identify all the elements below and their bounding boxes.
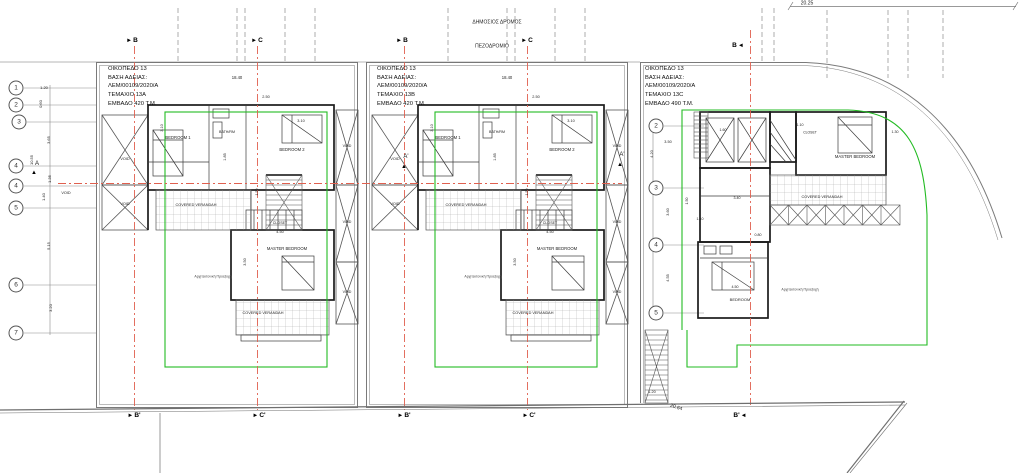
dim-label: 3.10	[161, 124, 165, 131]
section-marker: ►B'	[397, 413, 410, 420]
section-marker: ►C	[521, 38, 533, 45]
plot-info-line: ΤΕΜΑΧΙΟ 13Α	[108, 91, 158, 100]
dim-label: 3.50	[664, 141, 671, 145]
void-label: VOID	[343, 291, 352, 295]
section-arrow-icon: ►	[521, 38, 527, 44]
section-marker: ►C	[251, 38, 263, 45]
plot-info-line: ΕΜΒΑΔΟ 420 Τ.Μ.	[377, 100, 427, 109]
dim-label: 4.20	[651, 150, 655, 157]
section-arrow-icon: ►	[397, 413, 403, 419]
grid-bubble: 2	[9, 98, 24, 113]
plot-info-line: ΕΜΒΑΔΟ 420 Τ.Μ.	[108, 100, 158, 109]
room-label: CLOSET	[273, 222, 287, 226]
dim-label: 1.20	[40, 86, 48, 90]
grid-lines	[24, 85, 96, 335]
dim-label: 1.50	[526, 189, 530, 196]
grid-bubble: 4	[9, 179, 24, 194]
plot-info-block: ΟΙΚΟΠΕΔΟ 13ΒΑΣΗ ΑΔΕΙΑΣ:ΛΕΜ/00109/2020/ΑΤ…	[108, 65, 158, 108]
street-label: ΔΗΜΟΣΙΟΣ ΔΡΟΜΟΣ	[472, 21, 521, 26]
triangle-marker-icon: ▲	[401, 164, 407, 170]
grid-bubble: 4	[649, 238, 664, 253]
section-marker-label: B	[133, 38, 138, 45]
room-label: BEDROOM 2	[279, 148, 304, 152]
overhang-label: Αρχιτεκτονική Προεξοχή	[464, 275, 501, 279]
section-marker-label: B'	[404, 413, 410, 420]
dim-label: 1.50	[256, 189, 260, 196]
void-label: VOID	[390, 203, 399, 207]
section-marker-label: B'	[733, 413, 739, 420]
plot-info-line: ΛΕΜ/00109/2020/Α	[645, 82, 695, 91]
room-label: COVERED VERANDAH	[243, 312, 284, 316]
dim-label: 1.50	[686, 198, 690, 205]
section-marker-label: C	[528, 38, 533, 45]
grid-bubble: 6	[9, 278, 24, 293]
dim-label: 3.50	[514, 258, 518, 265]
dim-label: 1.20	[648, 391, 655, 395]
room-label: BATH/RM	[489, 131, 505, 135]
room-label: BEDROOM	[730, 298, 751, 302]
dim-label: 3.40	[734, 197, 741, 201]
overhang-label: Αρχιτεκτονική Προεξοχή	[194, 275, 231, 279]
plot-info-line: ΟΙΚΟΠΕΔΟ 13	[377, 65, 427, 74]
room-label: MASTER BEDROOM	[835, 155, 875, 159]
void-label: VOID	[613, 291, 622, 295]
section-arrow-icon: ►	[396, 38, 402, 44]
dim-label: 4.50	[276, 231, 283, 235]
plot-info-line: ΟΙΚΟΠΕΔΟ 13	[108, 65, 158, 74]
grid-bubble: 5	[649, 306, 664, 321]
dim-label: 2.50	[532, 96, 539, 100]
room-label: COVERED VERANDAH	[513, 312, 554, 316]
grid-bubble: 2	[649, 119, 664, 134]
triangle-marker-icon: ▲	[617, 162, 623, 168]
grid-bubble: 3	[649, 181, 664, 196]
sidewalk-label: ΠΕΖΟΔΡΟΜΙΟ	[475, 45, 509, 50]
section-marker-label: B'	[134, 413, 140, 420]
room-label: BEDROOM 1	[165, 136, 190, 140]
void-label: VOID	[61, 192, 70, 196]
grid-bubble: 5	[9, 201, 24, 216]
room-label: BEDROOM 1	[435, 136, 460, 140]
plot-info-block: ΟΙΚΟΠΕΔΟ 13ΒΑΣΗ ΑΔΕΙΑΣ:ΛΕΜ/00109/2020/ΑΤ…	[377, 65, 427, 108]
dim-label: 20.25	[801, 2, 814, 7]
grid-bubble: 4	[9, 159, 24, 174]
dim-label: 3.20	[49, 304, 53, 312]
void-label: VOID	[613, 221, 622, 225]
section-marker: ►B	[396, 38, 408, 45]
section-arrow-icon: ►	[252, 413, 258, 419]
section-marker: B'◄	[733, 413, 746, 420]
dim-label: 4.50	[546, 231, 553, 235]
void-label: VOID	[390, 158, 399, 162]
section-marker: ►C'	[522, 413, 535, 420]
void-label: VOID	[613, 145, 622, 149]
plot-info-line: ΤΕΜΑΧΙΟ 13C	[645, 91, 695, 100]
dim-label: 3.10	[431, 124, 435, 131]
dim-label: 1.60	[720, 129, 727, 133]
section-letter: A'	[403, 154, 408, 160]
section-marker: ►B	[126, 38, 138, 45]
plot-info-line: ΕΜΒΑΔΟ 490 Τ.Μ.	[645, 100, 695, 109]
dim-label: 10.55	[30, 155, 34, 165]
dim-label: 4.55	[667, 274, 671, 281]
floor-plan-canvas: ΟΙΚΟΠΕΔΟ 13ΒΑΣΗ ΑΔΕΙΑΣ:ΛΕΜ/00109/2020/ΑΤ…	[0, 0, 1024, 473]
dim-label: 18.40	[502, 76, 512, 80]
room-label: COVERED VERANDAH	[176, 204, 217, 208]
dim-label: 0.60	[39, 100, 43, 108]
section-marker-label: B	[732, 43, 737, 50]
section-marker-label: B	[403, 38, 408, 45]
void-label: VOID	[120, 158, 129, 162]
room-label: MASTER BEDROOM	[267, 247, 307, 251]
grid-bubble: 3	[12, 115, 27, 130]
dim-label: 1.30	[892, 131, 899, 135]
dim-label: 3.60	[667, 208, 671, 215]
section-marker-label: C'	[529, 413, 535, 420]
dim-label: 1.40	[42, 193, 46, 201]
dim-label: 3.10	[567, 120, 574, 124]
section-marker-label: C	[258, 38, 263, 45]
section-marker: ►B'	[127, 413, 140, 420]
room-label: MASTER BEDROOM	[537, 247, 577, 251]
plot-info-line: ΒΑΣΗ ΑΔΕΙΑΣ:	[645, 74, 695, 83]
dim-label: 1.85	[224, 153, 228, 160]
plot-info-line: ΒΑΣΗ ΑΔΕΙΑΣ:	[377, 74, 427, 83]
dim-label: 4.50	[732, 286, 739, 290]
room-label: COVERED VERANDAH	[802, 196, 843, 200]
plot-info-line: ΟΙΚΟΠΕΔΟ 13	[645, 65, 695, 74]
section-arrow-icon: ◄	[741, 413, 747, 419]
section-marker: B◄	[732, 43, 744, 50]
dim-label: 1.10	[797, 124, 804, 128]
dim-label: 2.50	[262, 96, 269, 100]
room-label: CLOSET	[803, 131, 817, 134]
plot-info-line: ΒΑΣΗ ΑΔΕΙΑΣ:	[108, 74, 158, 83]
dim-label: 3.50	[244, 258, 248, 265]
dim-label: 0.80	[755, 234, 762, 238]
section-letter: A'	[619, 152, 624, 158]
section-arrow-icon: ►	[126, 38, 132, 44]
plot-info-line: ΤΕΜΑΧΙΟ 13Β	[377, 91, 427, 100]
section-arrow-icon: ►	[127, 413, 133, 419]
void-label: VOID	[343, 221, 352, 225]
room-label: CLOSET	[543, 222, 557, 226]
room-label: COVERED VERANDAH	[446, 204, 487, 208]
section-marker-label: C'	[259, 413, 265, 420]
section-marker: ►C'	[252, 413, 265, 420]
triangle-marker-icon: ▲	[31, 170, 37, 176]
void-label: VOID	[343, 145, 352, 149]
plot-info-line: ΛΕΜ/00109/2020/Α	[108, 82, 158, 91]
plot-info-line: ΛΕΜ/00109/2020/Α	[377, 82, 427, 91]
dim-label: 5.15	[47, 242, 51, 250]
dim-label: 1.35	[48, 175, 52, 183]
dim-label: 1.10	[697, 218, 704, 222]
grid-bubble: 1	[9, 81, 24, 96]
section-arrow-icon: ►	[251, 38, 257, 44]
overhang-label: Αρχιτεκτονική Προεξοχή	[781, 288, 818, 292]
section-arrow-icon: ◄	[738, 43, 744, 49]
dim-label: 18.40	[232, 76, 242, 80]
room-label: BATH/RM	[219, 131, 235, 135]
void-label: VOID	[120, 203, 129, 207]
dim-label: 3.65	[47, 136, 51, 144]
section-arrow-icon: ►	[522, 413, 528, 419]
grid-bubble: 7	[9, 326, 24, 341]
section-letter: A	[35, 161, 39, 167]
plot-info-block: ΟΙΚΟΠΕΔΟ 13ΒΑΣΗ ΑΔΕΙΑΣ:ΛΕΜ/00109/2020/ΑΤ…	[645, 65, 695, 108]
dim-label: 1.85	[494, 153, 498, 160]
room-label: BEDROOM 2	[549, 148, 574, 152]
dim-label: 3.10	[297, 120, 304, 124]
